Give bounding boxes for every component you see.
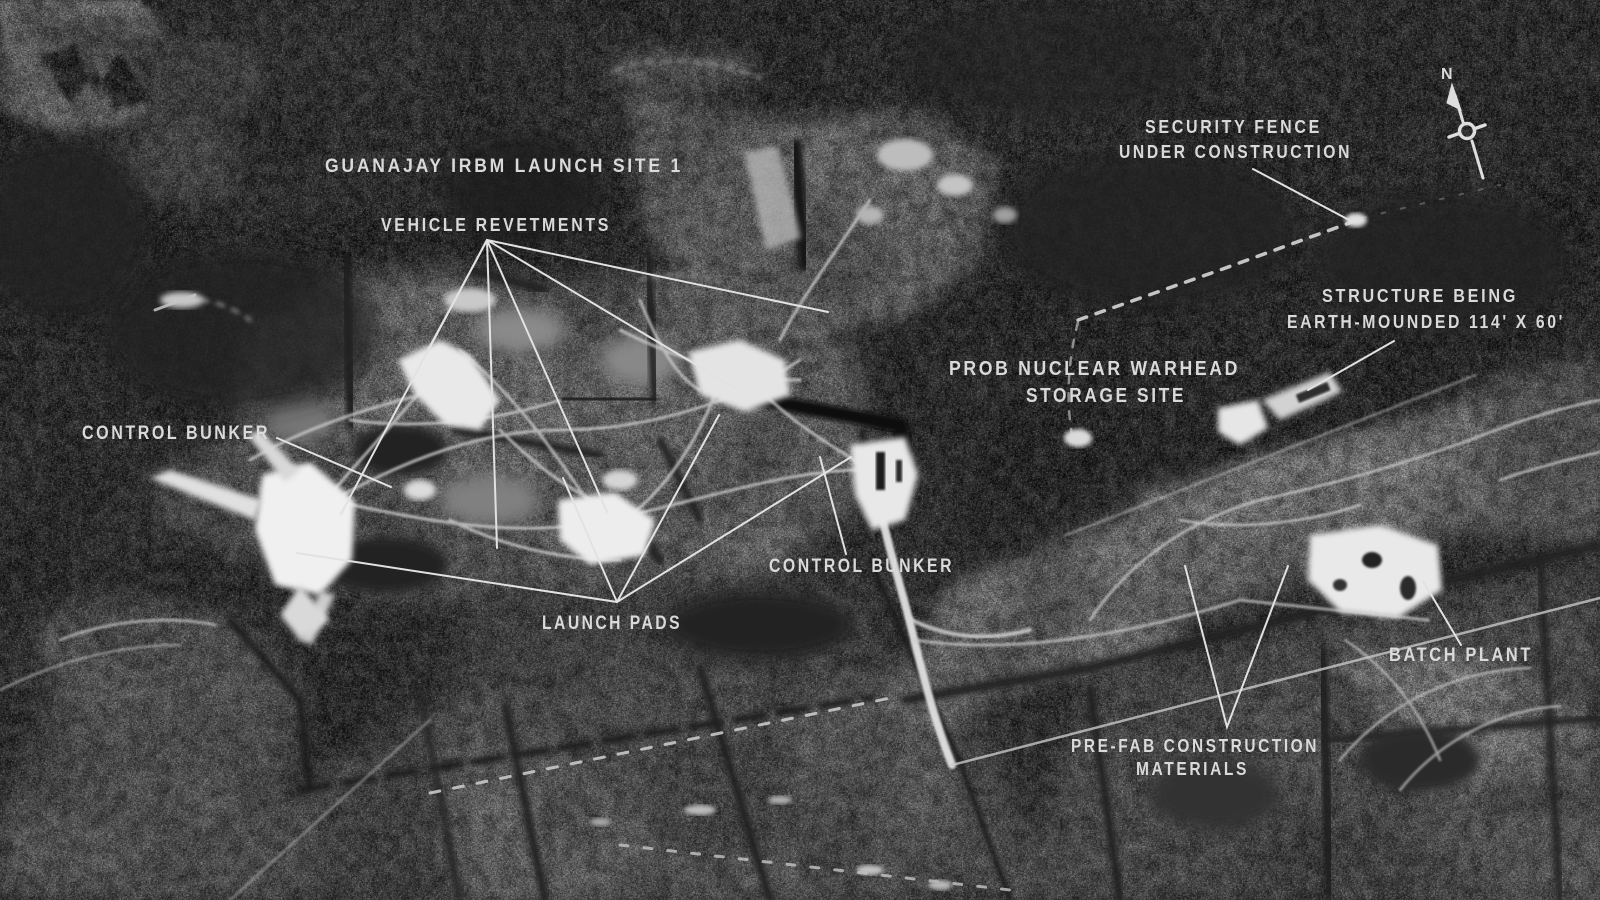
svg-text:SECURITY FENCE: SECURITY FENCE xyxy=(1145,117,1322,137)
svg-text:GUANAJAY IRBM LAUNCH SITE 1: GUANAJAY IRBM LAUNCH SITE 1 xyxy=(325,156,683,177)
svg-text:STRUCTURE BEING: STRUCTURE BEING xyxy=(1322,286,1518,306)
svg-text:STORAGE SITE: STORAGE SITE xyxy=(1026,385,1186,407)
svg-text:BATCH PLANT: BATCH PLANT xyxy=(1389,645,1533,666)
svg-text:N: N xyxy=(1441,66,1453,83)
svg-text:EARTH-MOUNDED 114' X 60': EARTH-MOUNDED 114' X 60' xyxy=(1287,312,1565,332)
svg-text:LAUNCH PADS: LAUNCH PADS xyxy=(542,613,682,634)
svg-text:PRE-FAB CONSTRUCTION: PRE-FAB CONSTRUCTION xyxy=(1071,736,1319,756)
svg-text:UNDER CONSTRUCTION: UNDER CONSTRUCTION xyxy=(1119,142,1352,162)
svg-text:VEHICLE REVETMENTS: VEHICLE REVETMENTS xyxy=(381,215,611,235)
svg-text:MATERIALS: MATERIALS xyxy=(1136,759,1249,779)
svg-text:CONTROL BUNKER: CONTROL BUNKER xyxy=(82,423,270,444)
svg-text:PROB NUCLEAR WARHEAD: PROB NUCLEAR WARHEAD xyxy=(949,358,1240,380)
svg-text:CONTROL BUNKER: CONTROL BUNKER xyxy=(769,556,954,577)
